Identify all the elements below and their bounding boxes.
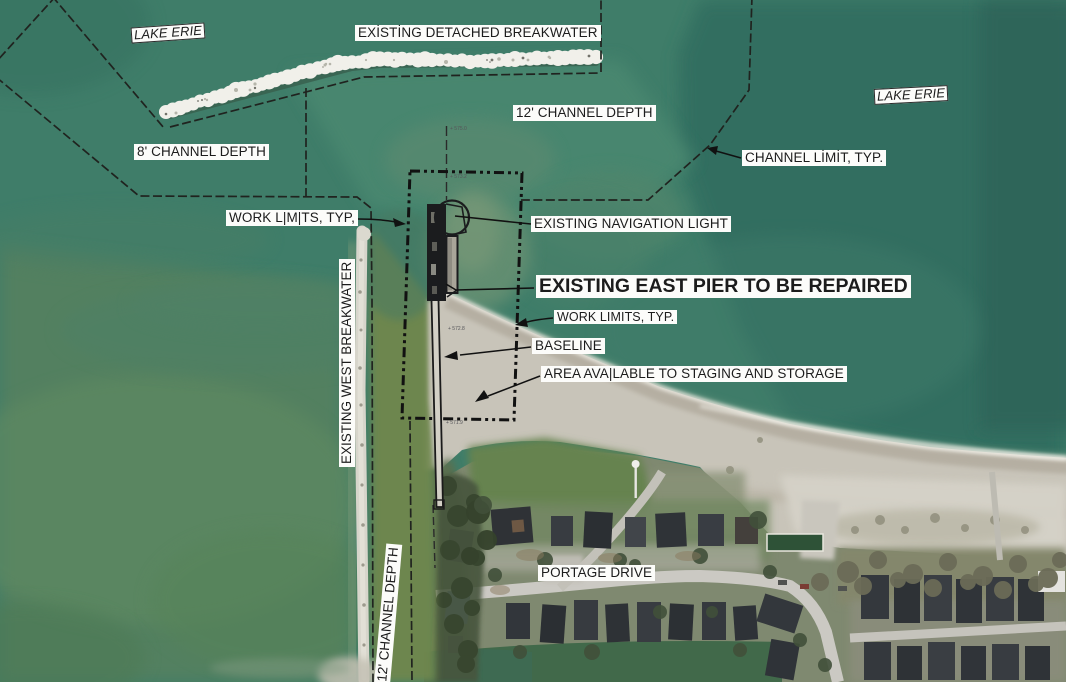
svg-text:+ 575.0: + 575.0 [450, 126, 467, 132]
svg-text:+ 572.8: + 572.8 [448, 326, 465, 332]
svg-text:+ 571.9: + 571.9 [446, 420, 463, 426]
svg-text:+ 573.2: + 573.2 [450, 174, 467, 180]
